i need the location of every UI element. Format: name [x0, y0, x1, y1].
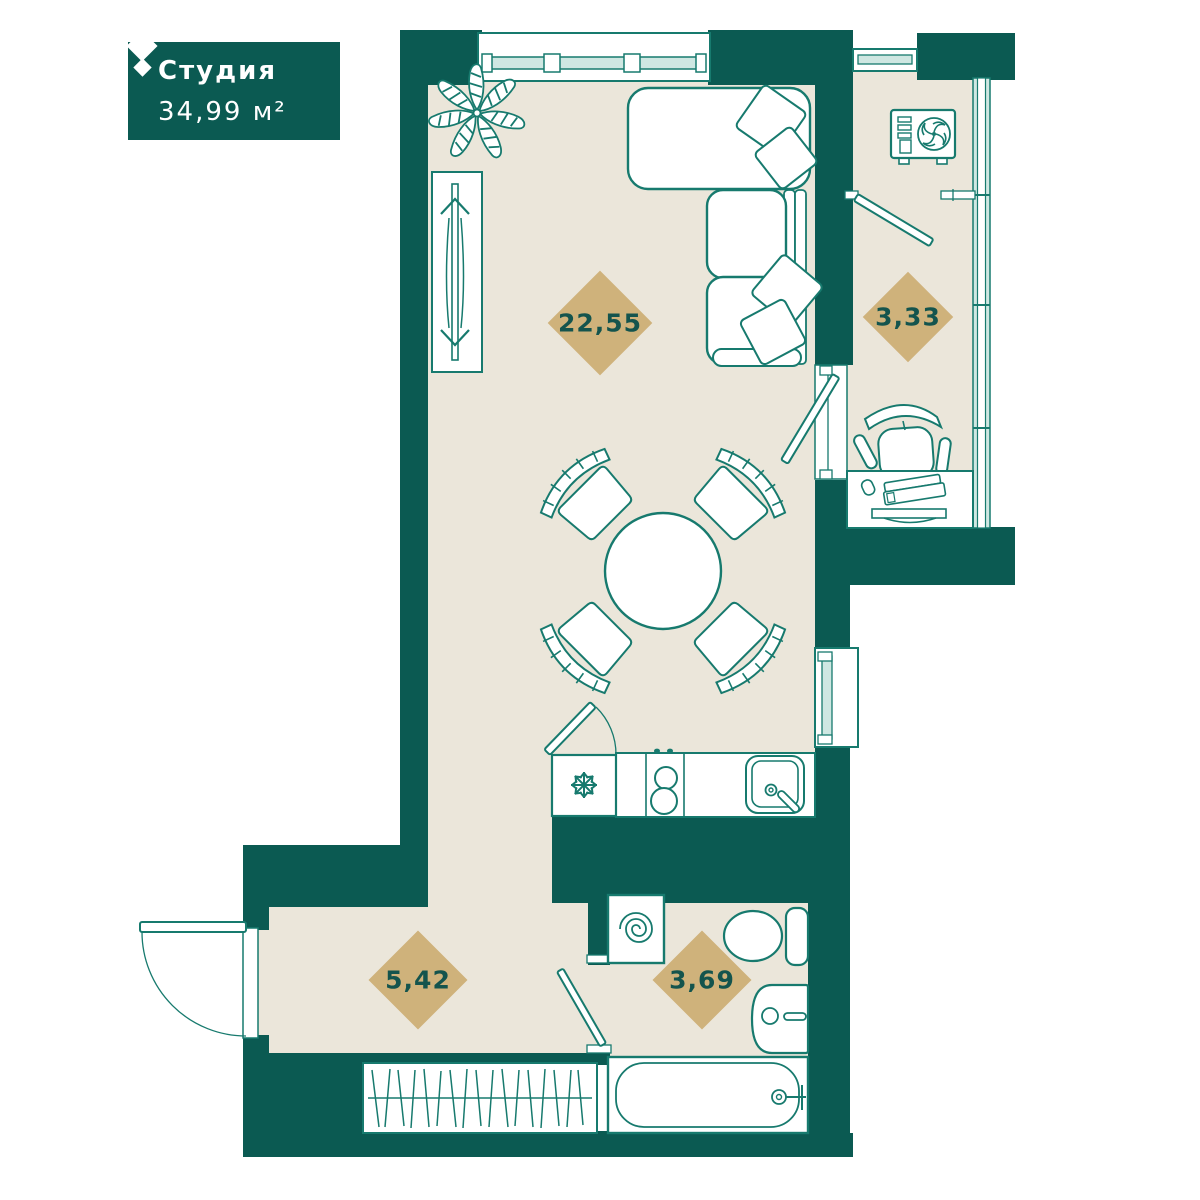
entrance-door [140, 922, 258, 1038]
wall-segment [588, 895, 610, 965]
wardrobe-icon [363, 1063, 597, 1133]
wall-segment [363, 1053, 610, 1065]
wall-segment [363, 1131, 610, 1157]
room-area-value: 5,42 [385, 966, 451, 995]
floor-plan-page: 22,55 3,33 5,42 3,69 Студия 34,99 м² [0, 0, 1200, 1200]
window-living-top [478, 33, 710, 81]
floor-bathroom-doorway [588, 963, 610, 1047]
unit-type-title: Студия [158, 56, 277, 86]
wall-segment [243, 1053, 375, 1157]
window-balcony-top [853, 49, 917, 71]
wall-segment [917, 33, 1015, 80]
wall-segment [815, 745, 850, 905]
wall-segment [243, 907, 269, 930]
bathtub [608, 1057, 808, 1133]
room-area-value: 22,55 [558, 309, 642, 338]
unit-badge: Студия 34,99 м² [128, 42, 340, 140]
balcony-glazing [973, 78, 990, 528]
wall-segment [400, 30, 428, 850]
wall-segment [243, 845, 428, 907]
window-living-right [815, 648, 858, 747]
wall-segment [552, 817, 850, 903]
wall-segment [830, 527, 1015, 585]
floor-living-room [428, 80, 815, 905]
room-area-value: 3,69 [669, 966, 735, 995]
wall-segment [243, 1035, 269, 1055]
unit-total-area: 34,99 м² [158, 97, 287, 127]
wall-segment [808, 895, 850, 1157]
wall-segment [815, 30, 853, 365]
room-area-value: 3,33 [875, 303, 941, 332]
